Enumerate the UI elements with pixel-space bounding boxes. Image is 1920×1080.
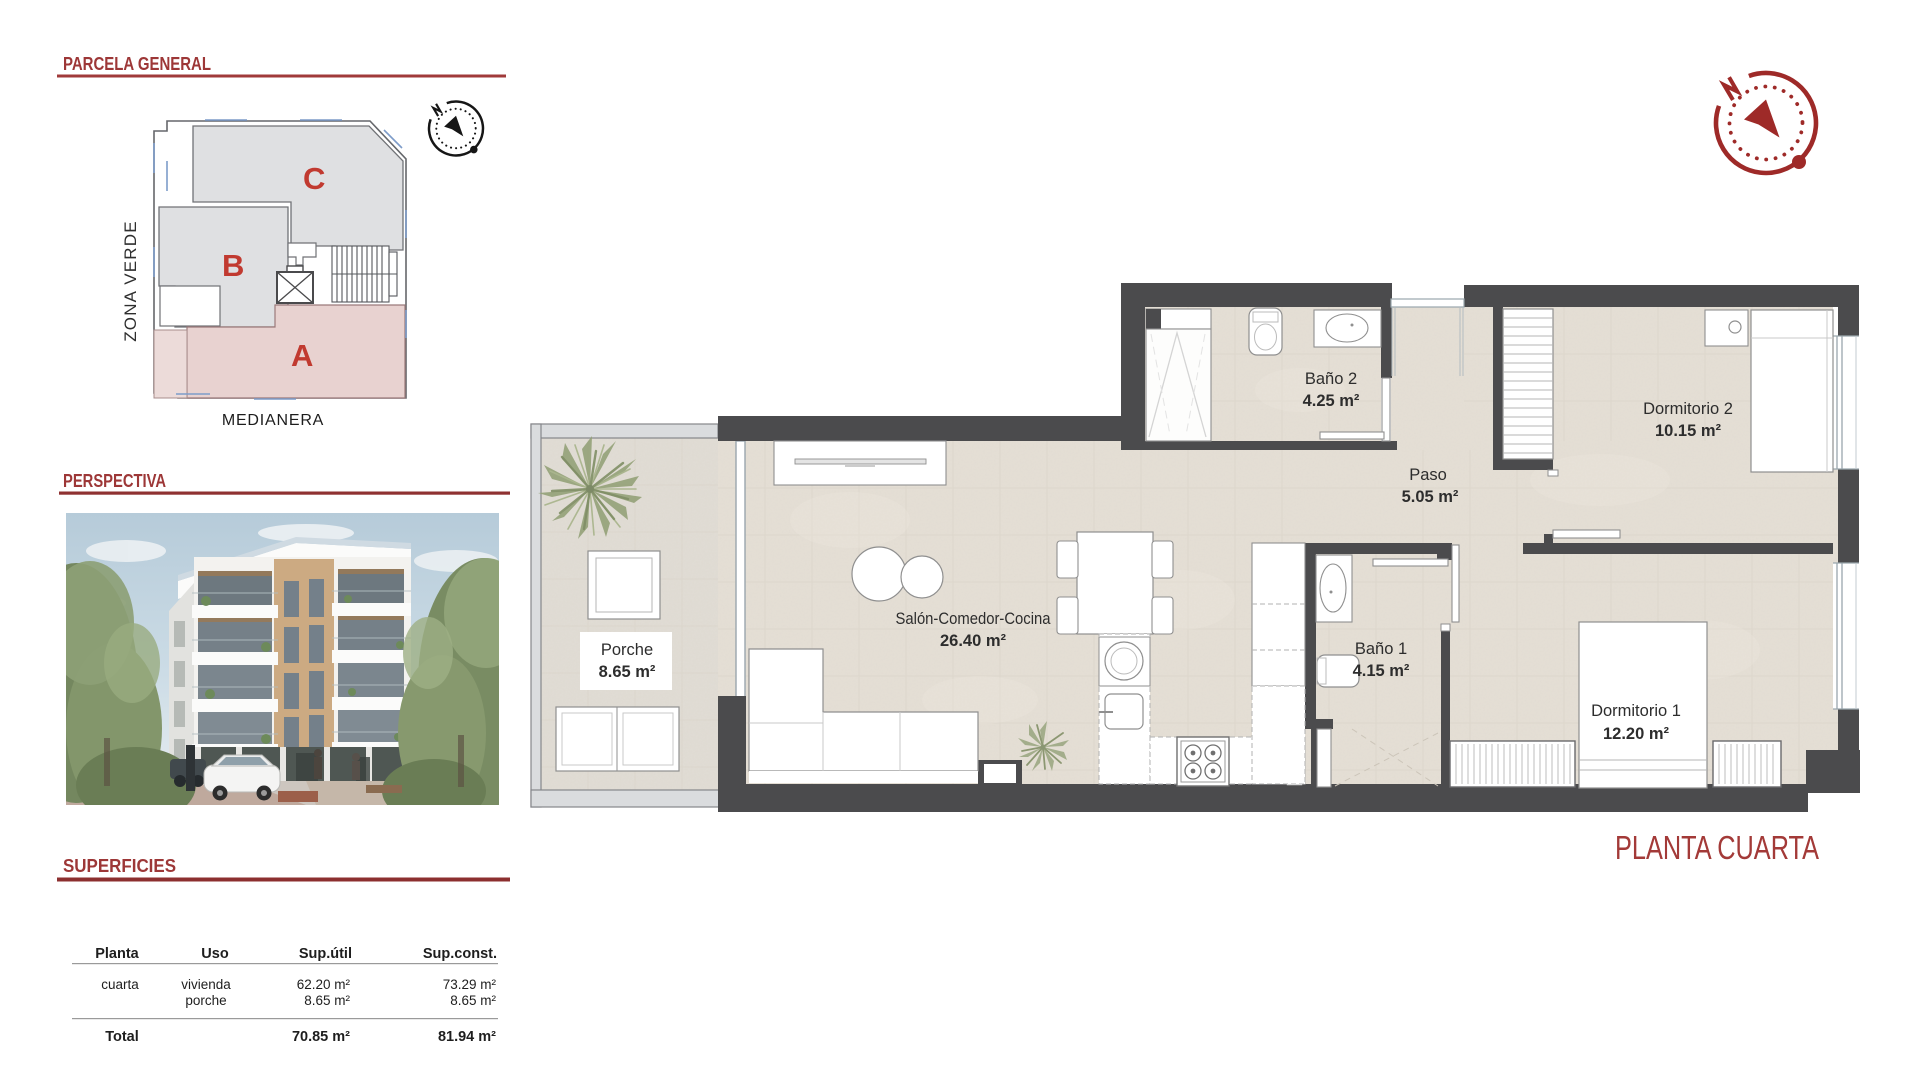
svg-text:Baño 2: Baño 2 bbox=[1305, 370, 1357, 388]
svg-text:4.25 m²: 4.25 m² bbox=[1303, 392, 1360, 410]
svg-text:4.15 m²: 4.15 m² bbox=[1353, 662, 1410, 680]
svg-text:Dormitorio 1: Dormitorio 1 bbox=[1591, 702, 1681, 720]
svg-text:Total: Total bbox=[105, 1029, 139, 1045]
svg-text:10.15 m²: 10.15 m² bbox=[1655, 422, 1722, 440]
svg-text:Baño 1: Baño 1 bbox=[1355, 640, 1407, 658]
svg-text:5.05 m²: 5.05 m² bbox=[1402, 488, 1459, 506]
svg-text:MEDIANERA: MEDIANERA bbox=[222, 412, 324, 429]
svg-text:vivienda: vivienda bbox=[181, 977, 231, 992]
svg-text:26.40 m²: 26.40 m² bbox=[940, 632, 1007, 650]
svg-text:cuarta: cuarta bbox=[101, 977, 139, 992]
svg-text:C: C bbox=[303, 161, 325, 196]
svg-text:Porche: Porche bbox=[601, 641, 653, 659]
svg-text:Sup.útil: Sup.útil bbox=[299, 946, 352, 962]
svg-text:Sup.const.: Sup.const. bbox=[423, 946, 497, 962]
svg-text:62.20 m²: 62.20 m² bbox=[297, 977, 351, 992]
svg-text:SUPERFICIES: SUPERFICIES bbox=[63, 855, 176, 876]
svg-text:PERSPECTIVA: PERSPECTIVA bbox=[63, 470, 166, 491]
svg-text:Planta: Planta bbox=[95, 946, 139, 962]
svg-text:Paso: Paso bbox=[1409, 466, 1447, 484]
svg-text:ZONA VERDE: ZONA VERDE bbox=[121, 220, 140, 342]
svg-text:Dormitorio 2: Dormitorio 2 bbox=[1643, 400, 1733, 418]
svg-text:81.94 m²: 81.94 m² bbox=[438, 1029, 496, 1045]
svg-text:PLANTA CUARTA: PLANTA CUARTA bbox=[1615, 829, 1819, 866]
svg-text:8.65 m²: 8.65 m² bbox=[304, 993, 350, 1008]
svg-text:B: B bbox=[222, 248, 244, 283]
svg-text:PARCELA GENERAL: PARCELA GENERAL bbox=[63, 53, 211, 74]
svg-text:8.65 m²: 8.65 m² bbox=[599, 663, 656, 681]
svg-text:12.20 m²: 12.20 m² bbox=[1603, 725, 1670, 743]
svg-text:Uso: Uso bbox=[201, 946, 229, 962]
svg-text:8.65 m²: 8.65 m² bbox=[450, 993, 496, 1008]
svg-text:73.29 m²: 73.29 m² bbox=[443, 977, 497, 992]
svg-text:70.85 m²: 70.85 m² bbox=[292, 1029, 350, 1045]
svg-text:A: A bbox=[291, 338, 313, 373]
svg-text:porche: porche bbox=[185, 993, 226, 1008]
svg-text:Salón-Comedor-Cocina: Salón-Comedor-Cocina bbox=[896, 610, 1052, 628]
